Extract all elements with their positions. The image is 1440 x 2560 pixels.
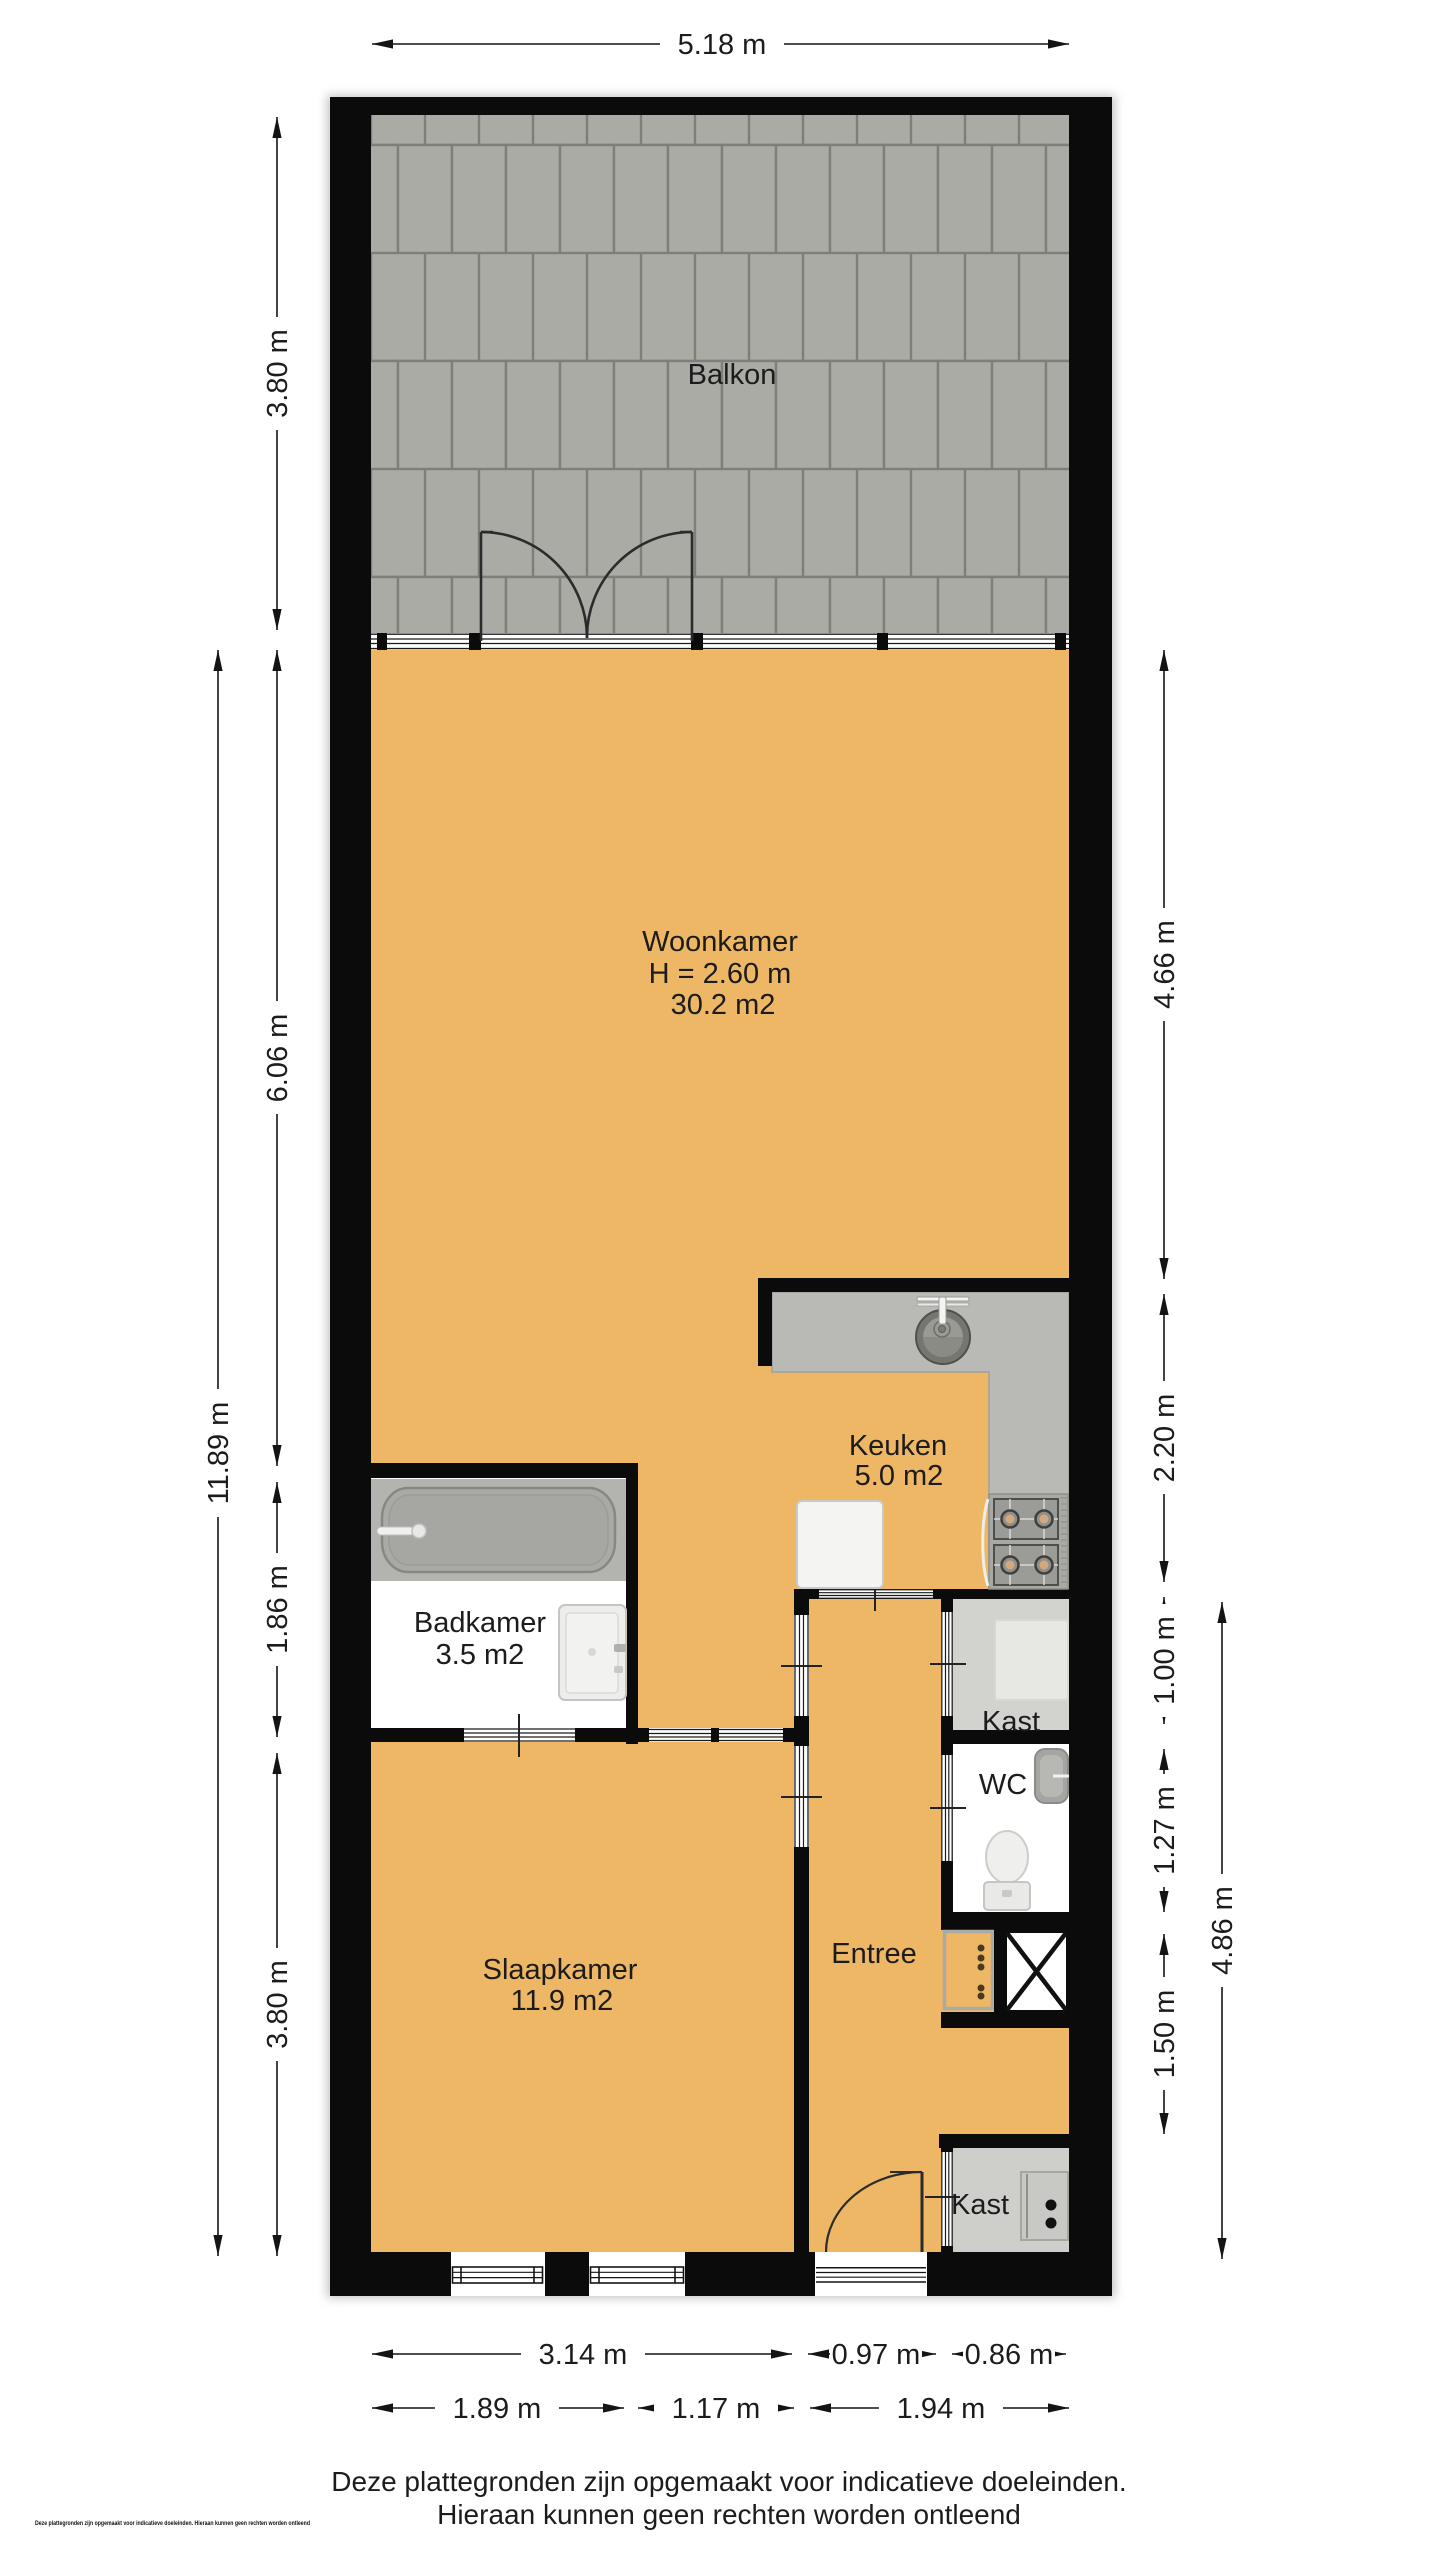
- svg-text:Kast: Kast: [982, 1706, 1040, 1738]
- svg-text:1.17 m: 1.17 m: [672, 2393, 761, 2425]
- svg-text:1.86 m: 1.86 m: [262, 1565, 294, 1654]
- svg-text:0.97 m: 0.97 m: [832, 2339, 921, 2371]
- svg-text:Keuken: Keuken: [849, 1430, 947, 1462]
- svg-text:1.89 m: 1.89 m: [453, 2393, 542, 2425]
- svg-text:1.00 m: 1.00 m: [1149, 1616, 1181, 1705]
- svg-text:30.2 m2: 30.2 m2: [671, 989, 776, 1021]
- svg-text:1.50 m: 1.50 m: [1149, 1990, 1181, 2079]
- svg-text:6.06 m: 6.06 m: [262, 1014, 294, 1103]
- svg-text:3.80 m: 3.80 m: [262, 1960, 294, 2049]
- svg-text:11.89 m: 11.89 m: [203, 1402, 235, 1505]
- svg-text:Woonkamer: Woonkamer: [642, 926, 798, 958]
- svg-text:Slaapkamer: Slaapkamer: [483, 1954, 638, 1986]
- svg-text:Entree: Entree: [831, 1938, 916, 1970]
- svg-text:1.27 m: 1.27 m: [1149, 1786, 1181, 1875]
- svg-text:2.20 m: 2.20 m: [1149, 1394, 1181, 1483]
- svg-text:Deze plattegronden zijn opgema: Deze plattegronden zijn opgemaakt voor i…: [35, 2520, 310, 2527]
- svg-text:Deze plattegronden zijn opgema: Deze plattegronden zijn opgemaakt voor i…: [331, 2466, 1126, 2497]
- svg-text:5.0 m2: 5.0 m2: [855, 1460, 944, 1492]
- svg-text:Kast: Kast: [951, 2189, 1009, 2221]
- svg-text:1.94 m: 1.94 m: [897, 2393, 986, 2425]
- svg-text:WC: WC: [979, 1769, 1027, 1801]
- svg-text:5.18 m: 5.18 m: [678, 29, 767, 61]
- svg-text:3.80 m: 3.80 m: [262, 329, 294, 418]
- svg-text:Balkon: Balkon: [688, 359, 777, 391]
- svg-text:11.9 m2: 11.9 m2: [511, 1985, 614, 2017]
- svg-text:4.66 m: 4.66 m: [1149, 920, 1181, 1009]
- svg-text:Badkamer: Badkamer: [414, 1607, 547, 1639]
- svg-text:4.86 m: 4.86 m: [1207, 1886, 1239, 1975]
- svg-text:3.5 m2: 3.5 m2: [436, 1639, 525, 1671]
- svg-text:Hieraan kunnen geen rechten wo: Hieraan kunnen geen rechten worden ontle…: [437, 2499, 1021, 2530]
- svg-text:H = 2.60 m: H = 2.60 m: [649, 958, 792, 990]
- svg-text:3.14 m: 3.14 m: [539, 2339, 628, 2371]
- svg-text:0.86 m: 0.86 m: [965, 2339, 1054, 2371]
